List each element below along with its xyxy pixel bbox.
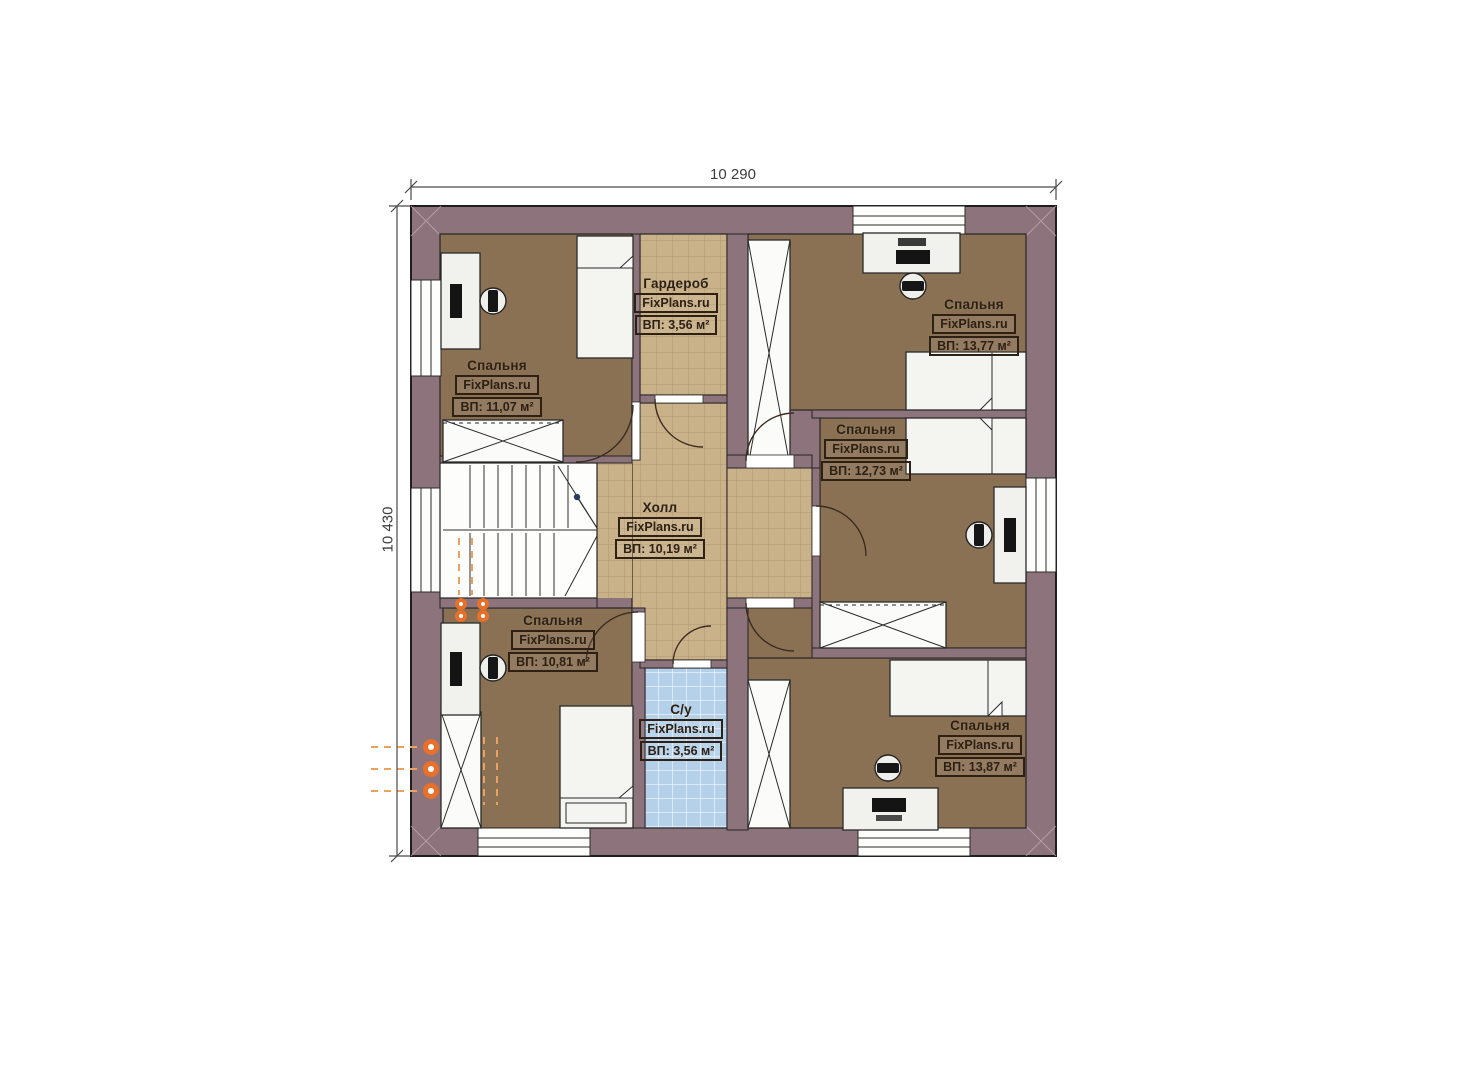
wall-mr-br — [812, 648, 1026, 658]
printer-icon — [898, 238, 926, 246]
bed-bedroom-br — [890, 660, 1026, 716]
floor-hall-left — [597, 463, 632, 598]
wardrobe-bedroom-mr — [820, 602, 946, 648]
dimension-width-label: 10 290 — [693, 166, 773, 183]
office-chair-icon — [480, 288, 506, 314]
staircase — [440, 463, 597, 598]
window-left-upper — [411, 280, 441, 376]
window-right — [1026, 478, 1056, 572]
keyboard-icon — [876, 815, 902, 821]
floor-hall-corridor — [727, 468, 812, 598]
wardrobe-bedroom-tl — [443, 420, 563, 462]
floor-plan-page: 10 290 10 430 Гардероб FixPlans.ru ВП: 3… — [0, 0, 1473, 1080]
office-chair-icon — [480, 655, 506, 681]
floor-garderob — [640, 234, 727, 395]
wall-tr-mr — [812, 410, 1026, 418]
window-top — [853, 206, 965, 234]
floor-bathroom — [645, 668, 727, 828]
bed-bedroom-mr — [906, 418, 1026, 474]
bed-bedroom-tl — [577, 236, 633, 358]
wall-bath-br — [727, 598, 748, 830]
bed-bedroom-tr — [906, 352, 1026, 410]
floor-plan-drawing — [0, 0, 1473, 1080]
window-bottom-left — [478, 828, 590, 856]
monitor-icon — [872, 798, 906, 812]
monitor-icon — [896, 250, 930, 264]
dimension-height-label: 10 430 — [380, 490, 397, 570]
bed-bedroom-bl — [560, 706, 633, 828]
office-chair-icon — [900, 273, 926, 299]
office-chair-icon — [875, 755, 901, 781]
wardrobe-bedroom-tr — [748, 240, 790, 466]
office-chair-icon — [966, 522, 992, 548]
monitor-icon — [450, 284, 462, 318]
monitor-icon — [1004, 518, 1016, 552]
window-bottom-right — [858, 828, 970, 856]
window-left-stairs — [411, 488, 441, 592]
wardrobe-bedroom-bl — [441, 712, 481, 828]
wall-garderob-tr — [727, 234, 748, 468]
wardrobe-bedroom-br — [748, 680, 790, 828]
monitor-icon — [450, 652, 462, 686]
wall-corridor-mr — [812, 468, 820, 648]
wall-pipe-dots — [423, 739, 439, 799]
